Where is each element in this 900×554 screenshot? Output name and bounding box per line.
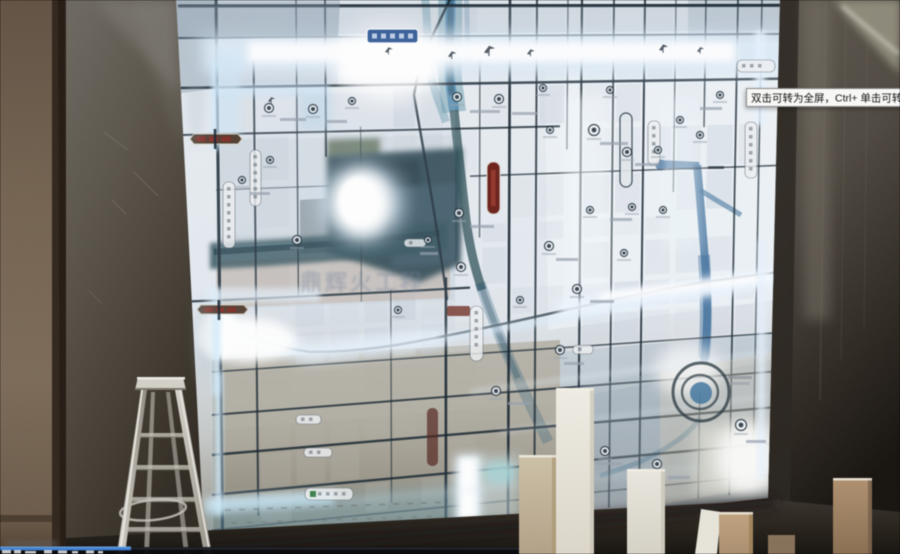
svg-text:双击可转为全屏，Ctrl+ 单击可转为: 双击可转为全屏，Ctrl+ 单击可转为 [751, 92, 900, 105]
